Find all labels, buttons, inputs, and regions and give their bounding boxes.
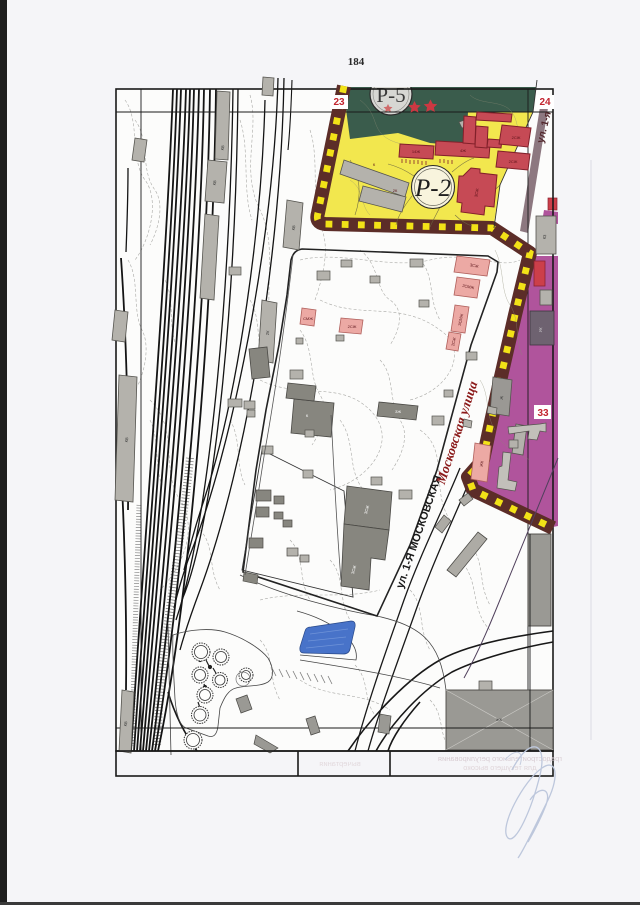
svg-text:КВ: КВ xyxy=(220,145,225,151)
svg-text:2СЖ: 2СЖ xyxy=(512,135,521,140)
svg-text:184: 184 xyxy=(348,56,365,68)
svg-text:24: 24 xyxy=(539,97,551,108)
svg-text:2СЖ: 2СЖ xyxy=(509,159,518,164)
svg-text:КВ: КВ xyxy=(124,437,129,443)
svg-text:23: 23 xyxy=(333,97,345,108)
svg-text:ЗЖ: ЗЖ xyxy=(395,409,401,414)
svg-text:2К: 2К xyxy=(393,188,398,193)
svg-text:КВ: КВ xyxy=(291,225,296,231)
svg-text:СМЖ: СМЖ xyxy=(303,316,313,321)
svg-text:14Ж: 14Ж xyxy=(412,149,420,154)
svg-text:4Ж: 4Ж xyxy=(460,148,466,153)
svg-text:градостроительного регулирован: градостроительного регулирования xyxy=(438,754,562,763)
svg-text:для текущего высоко: для текущего высоко xyxy=(463,763,537,772)
svg-text:ЖК: ЖК xyxy=(496,717,503,722)
svg-text:КВ: КВ xyxy=(212,180,217,186)
svg-text:КВ: КВ xyxy=(123,721,128,727)
svg-text:вычертания: вычертания xyxy=(319,759,360,768)
svg-text:33: 33 xyxy=(537,408,549,419)
svg-text:2СЖ: 2СЖ xyxy=(348,324,357,329)
svg-text:Р-2: Р-2 xyxy=(414,175,451,202)
